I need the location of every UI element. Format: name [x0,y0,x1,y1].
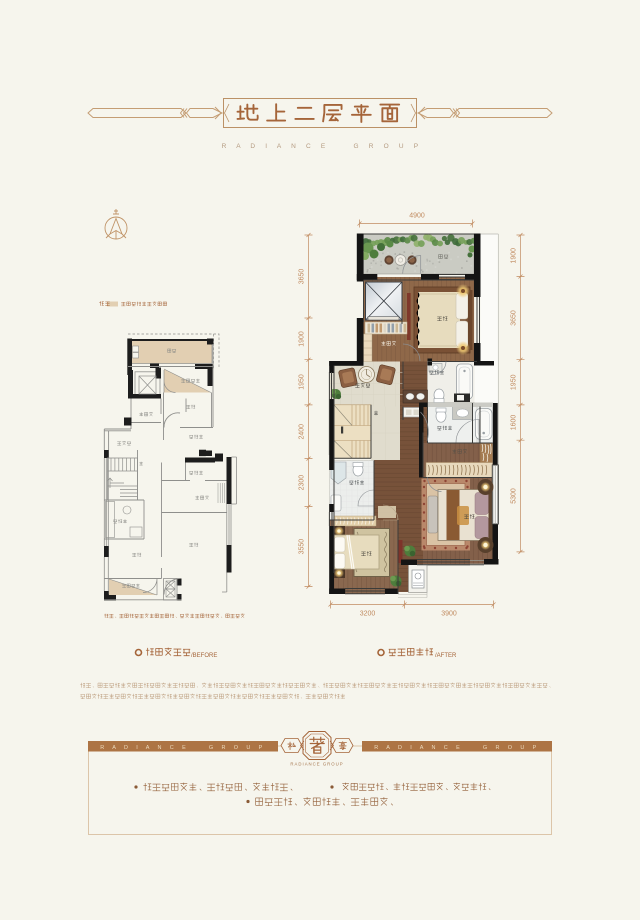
svg-text:R A D I A N C E G R O U P: R A D I A N C E G R O U P [100,745,266,751]
svg-text:RADIANCE GROUP: RADIANCE GROUP [290,762,343,767]
svg-text:2300: 2300 [299,475,306,491]
svg-text:/BEFORE: /BEFORE [191,653,217,659]
svg-text:1900: 1900 [299,331,306,347]
svg-text:3200: 3200 [360,611,376,618]
svg-text:1600: 1600 [511,415,518,431]
svg-text:3650: 3650 [511,310,518,326]
svg-text:3650: 3650 [299,269,306,285]
svg-text:/AFTER: /AFTER [435,653,457,659]
svg-text:3550: 3550 [299,539,306,555]
svg-text:1900: 1900 [511,248,518,264]
svg-text:R A D I A N C E G R O U P: R A D I A N C E G R O U P [374,745,540,751]
svg-text:R A D I A N C E G R O U P: R A D I A N C E G R O U P [222,143,423,150]
svg-text:1950: 1950 [511,374,518,390]
svg-text:5300: 5300 [511,488,518,504]
svg-text:4900: 4900 [409,213,425,220]
svg-text:1950: 1950 [299,374,306,390]
svg-text:3900: 3900 [441,611,457,618]
svg-text:2400: 2400 [299,424,306,440]
